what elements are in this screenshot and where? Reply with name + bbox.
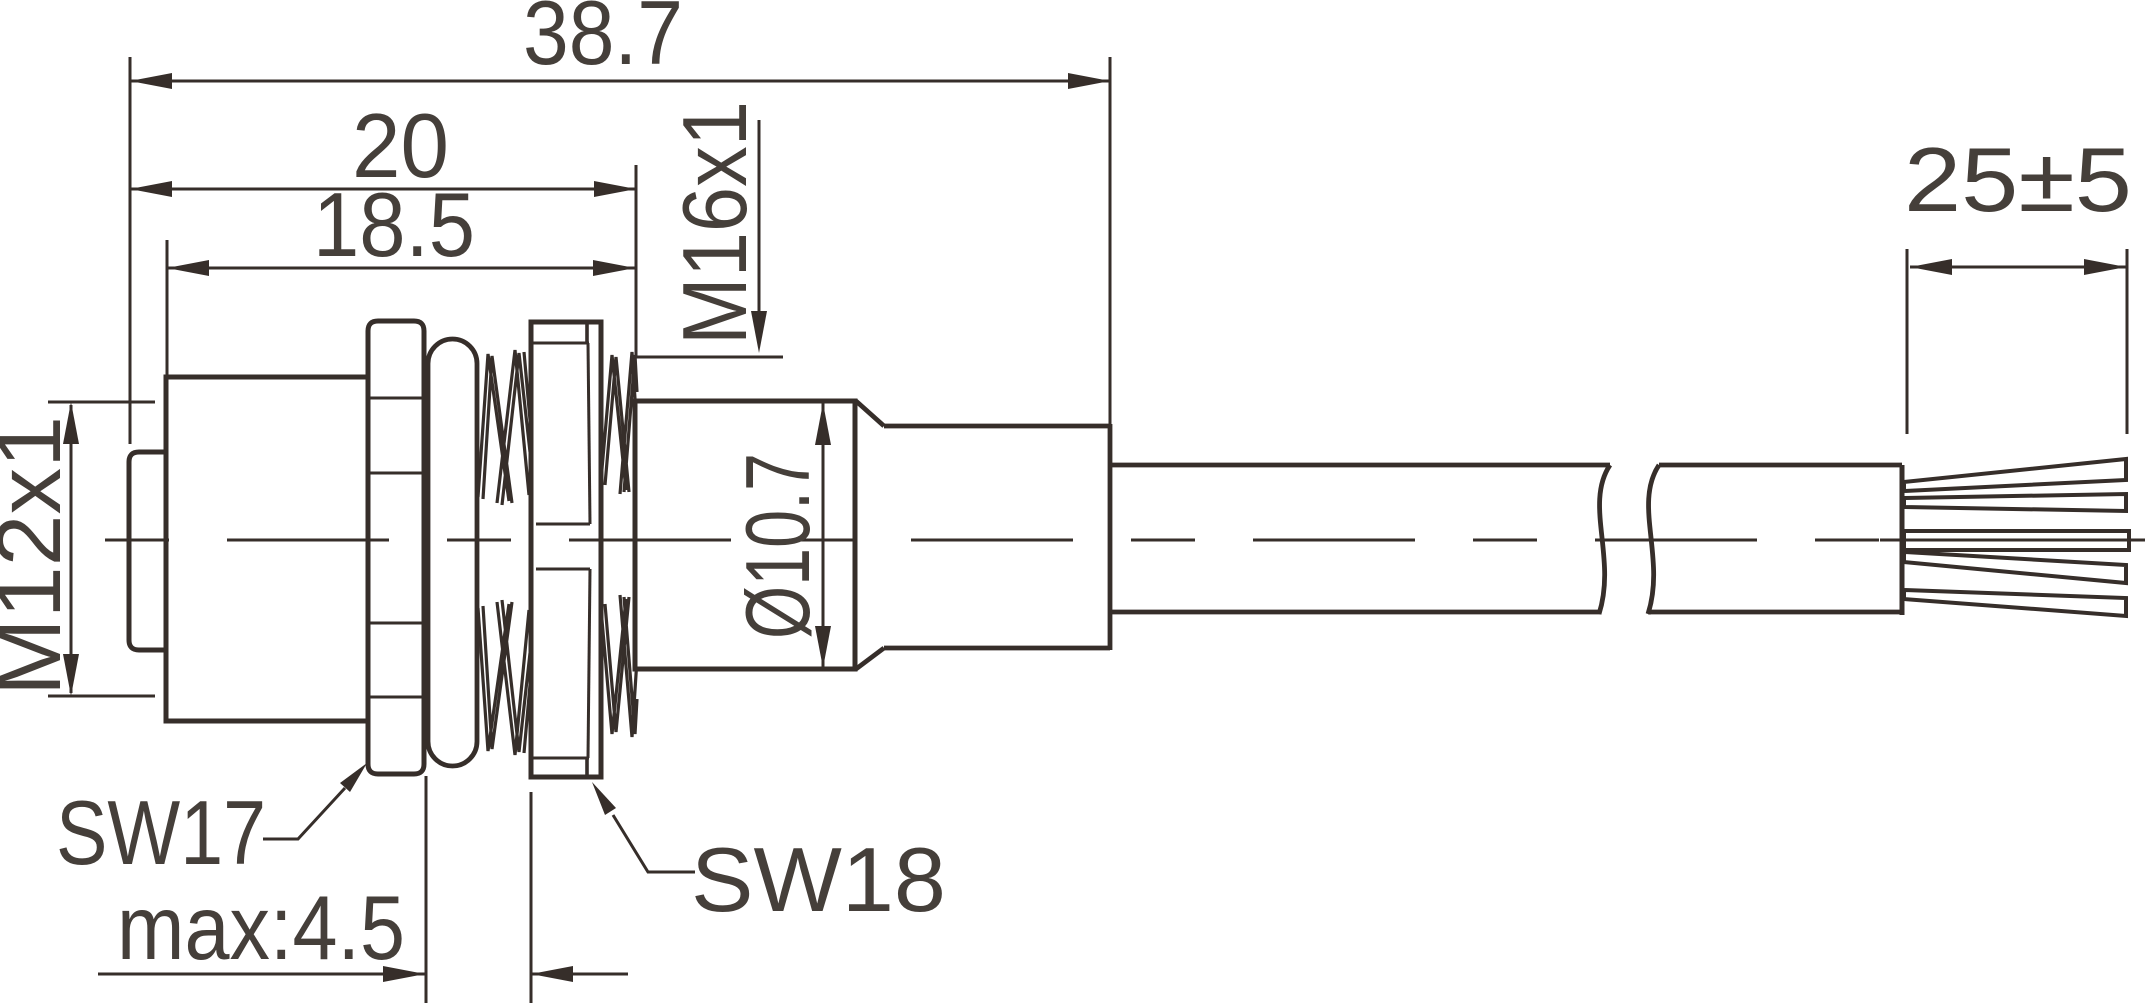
svg-text:38.7: 38.7 <box>523 0 683 84</box>
svg-text:25±5: 25±5 <box>1904 130 2132 231</box>
svg-text:SW17: SW17 <box>56 783 266 884</box>
svg-text:max:4.5: max:4.5 <box>117 878 405 979</box>
svg-text:M12x1: M12x1 <box>0 416 80 696</box>
svg-text:18.5: 18.5 <box>313 175 475 276</box>
svg-text:SW18: SW18 <box>691 830 946 931</box>
svg-text:Ø10.7: Ø10.7 <box>728 453 829 639</box>
svg-text:M16x1: M16x1 <box>665 101 766 345</box>
